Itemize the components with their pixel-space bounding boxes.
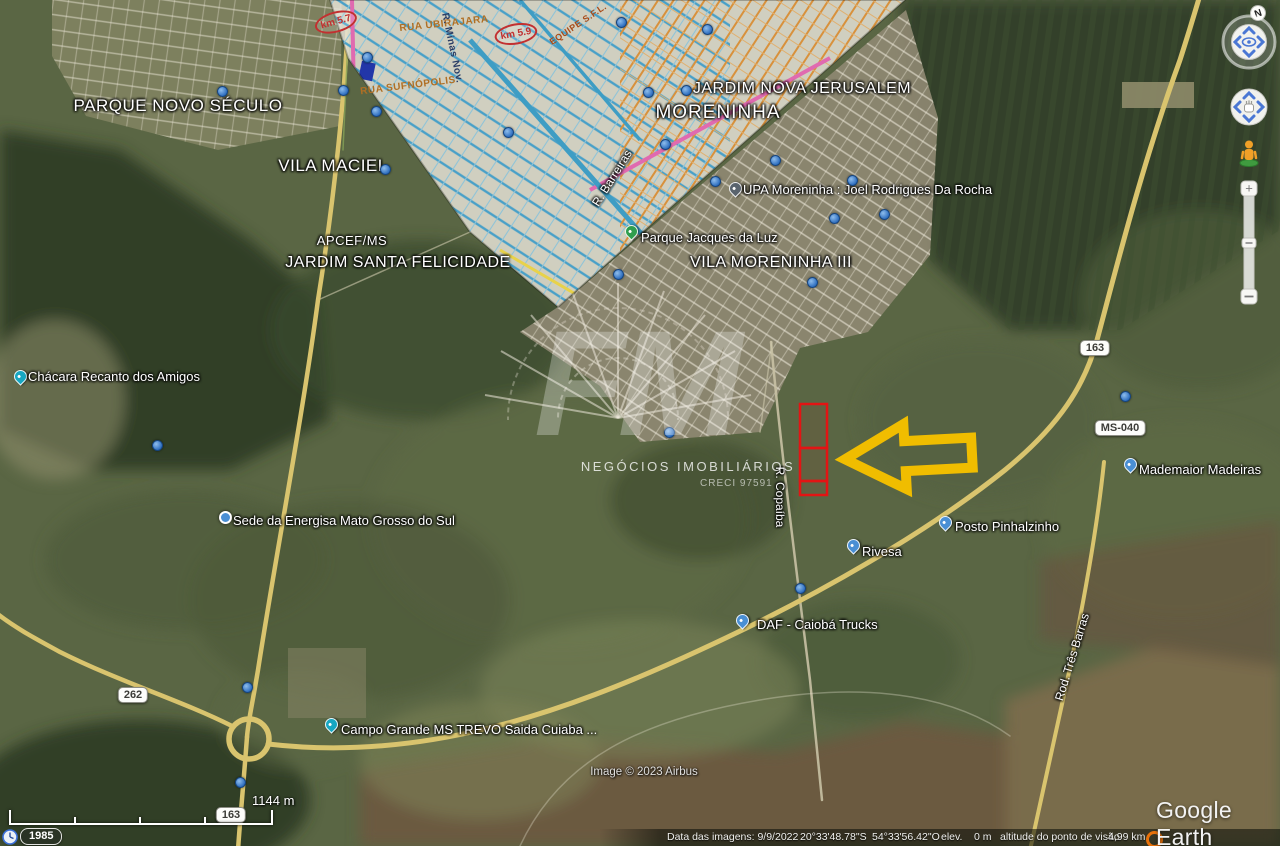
photo-icon[interactable]	[770, 155, 781, 166]
road-shield: 262	[118, 687, 148, 703]
photo-icon[interactable]	[681, 85, 692, 96]
photo-icon[interactable]	[807, 277, 818, 288]
agency-watermark-name: NEGÓCIOS IMOBILIÁRIOS	[581, 459, 795, 474]
photo-icon[interactable]	[380, 164, 391, 175]
photo-icon[interactable]	[1120, 391, 1131, 402]
google-earth-viewport[interactable]: PARQUE NOVO SÉCULO VILA MACIEL APCEF/MS …	[0, 0, 1280, 846]
region-label: VILA MACIEL	[278, 156, 387, 176]
photo-icon[interactable]	[643, 87, 654, 98]
photo-icon[interactable]	[242, 682, 253, 693]
photo-icon[interactable]	[217, 86, 228, 97]
photo-icon[interactable]	[338, 85, 349, 96]
poi-label[interactable]: Mademaior Madeiras	[1139, 462, 1261, 477]
pegman-icon[interactable]	[1240, 141, 1258, 167]
clock-icon[interactable]	[2, 829, 18, 845]
poi-label[interactable]: Posto Pinhalzinho	[955, 519, 1059, 534]
longitude-value: 54°33'56.42"O	[872, 831, 940, 843]
region-label: VILA MORENINHA III	[690, 254, 852, 272]
zoom-slider[interactable]: +	[1241, 181, 1257, 305]
photo-icon[interactable]	[660, 139, 671, 150]
photo-icon[interactable]	[847, 175, 858, 186]
photo-icon[interactable]	[710, 176, 721, 187]
region-label: MORENINHA	[655, 102, 780, 124]
look-joystick[interactable]	[1223, 16, 1275, 68]
road-shield: MS-040	[1095, 420, 1146, 436]
photo-icon[interactable]	[235, 777, 246, 788]
google-earth-logo: Google Earth	[1156, 797, 1280, 846]
poi-label[interactable]: Campo Grande MS TREVO Saida Cuiaba ...	[341, 722, 597, 737]
road-shield: 163	[1080, 340, 1110, 356]
street-label: R. Copaíba	[773, 467, 787, 528]
zoom-out-button[interactable]	[1241, 289, 1257, 304]
zoom-slider-handle[interactable]	[1242, 238, 1256, 248]
photo-icon[interactable]	[152, 440, 163, 451]
highlight-parcel	[800, 404, 827, 495]
poi-label[interactable]: Chácara Recanto dos Amigos	[28, 369, 200, 384]
poi-label[interactable]: Rivesa	[862, 544, 902, 559]
latitude-value: 20°33'48.78"S	[800, 831, 867, 843]
photo-icon[interactable]	[829, 213, 840, 224]
dot-pin[interactable]	[219, 511, 232, 524]
photo-icon[interactable]	[371, 106, 382, 117]
svg-text:+: +	[1245, 181, 1253, 196]
photo-icon[interactable]	[702, 24, 713, 35]
history-year-chip[interactable]: 1985	[20, 828, 62, 845]
view-altitude-value: 4,99 km	[1108, 831, 1145, 843]
agency-watermark-creci: CRECI 97591	[700, 478, 773, 489]
region-label: JARDIM SANTA FELICIDADE	[285, 254, 510, 272]
poi-label[interactable]: DAF - Caiobá Trucks	[757, 617, 878, 632]
photo-icon[interactable]	[879, 209, 890, 220]
poi-label[interactable]: Parque Jacques da Luz	[641, 230, 778, 245]
imagery-credit: Image © 2023 Airbus	[590, 766, 698, 778]
poi-label[interactable]: Sede da Energisa Mato Grosso do Sul	[233, 513, 455, 528]
elevation-label: elev.	[941, 831, 962, 843]
view-altitude-label: altitude do ponto de visão	[1000, 831, 1120, 843]
photo-icon[interactable]	[795, 583, 806, 594]
photo-icon[interactable]	[616, 17, 627, 28]
scale-bar	[8, 806, 276, 828]
poi-label[interactable]: UPA Moreninha : Joel Rodrigues Da Rocha	[743, 182, 992, 197]
zoom-in-button[interactable]: +	[1241, 181, 1257, 197]
region-label: APCEF/MS	[317, 233, 387, 248]
navigation-controls[interactable]: N	[1212, 2, 1280, 314]
region-label: PARQUE NOVO SÉCULO	[74, 96, 283, 116]
photo-icon[interactable]	[503, 127, 514, 138]
imagery-date: Data das imagens: 9/9/2022	[667, 831, 798, 843]
photo-icon[interactable]	[362, 52, 373, 63]
elevation-value: 0 m	[974, 831, 992, 843]
region-label: JARDIM NOVA JERUSALEM	[693, 80, 911, 98]
agency-watermark-logo: FM	[534, 308, 735, 458]
photo-icon[interactable]	[613, 269, 624, 280]
pan-joystick[interactable]	[1231, 89, 1267, 125]
